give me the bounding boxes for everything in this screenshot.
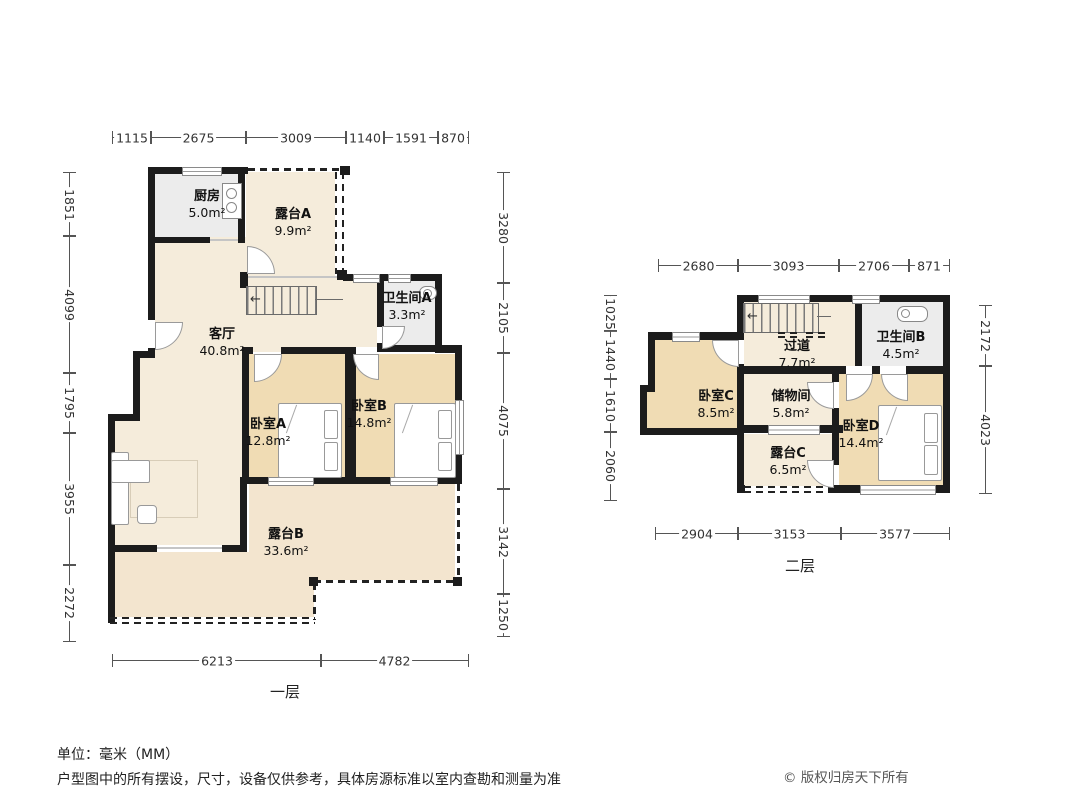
dim-right: 2105 [497, 282, 510, 354]
dim-bottom: 3577 [840, 527, 950, 540]
stairs-direction-arrow-icon: ← [250, 293, 261, 306]
dim-top: 2675 [150, 131, 247, 144]
dim-right: 3142 [497, 488, 510, 595]
room-bath-b-label: 卫生间B 4.5m² [866, 330, 936, 361]
room-terrace-a-label: 露台A 9.9m² [258, 207, 328, 238]
window [768, 425, 820, 435]
room-storage-label: 储物间 5.8m² [756, 389, 826, 420]
window [455, 400, 464, 455]
unit-note: 单位：毫米（MM） [57, 744, 179, 764]
room-hallway-label: 过道 7.7m² [762, 339, 832, 370]
room-terrace-c-label: 露台C 6.5m² [753, 446, 823, 477]
opening-line [246, 276, 343, 278]
wall [148, 237, 210, 243]
terrace-dashed-edge [314, 580, 458, 583]
corner-post [340, 166, 350, 175]
terrace-dashed-edge [313, 583, 316, 620]
corner-post [453, 577, 462, 586]
dim-bottom: 3153 [737, 527, 842, 540]
window [353, 274, 380, 283]
wall [108, 545, 157, 552]
wall [737, 425, 768, 433]
window [390, 477, 438, 486]
terrace-dashed-edge [744, 486, 832, 493]
pillow [924, 445, 938, 475]
stairs-rail [315, 299, 343, 300]
window [852, 295, 880, 304]
terrace-dashed-edge [335, 172, 344, 274]
terrace-dashed-edge [110, 617, 315, 624]
terrace-dashed-edge [248, 168, 343, 171]
stairs-direction-arrow-icon: ← [747, 310, 758, 323]
dim-top: 1591 [383, 131, 439, 144]
dim-top: 3009 [245, 131, 347, 144]
dim-left: 2272 [63, 564, 76, 642]
dim-top: 2706 [838, 259, 910, 272]
wall [872, 366, 880, 374]
corner-post [337, 270, 347, 280]
stairs-rail [817, 316, 831, 317]
wall [148, 167, 155, 320]
copyright-text: © 版权归房天下所有 [783, 766, 909, 786]
corner-post [309, 577, 318, 586]
dim-left: 1440 [604, 330, 617, 380]
wall [737, 332, 744, 340]
stairs-break-line [778, 332, 800, 338]
window [672, 332, 700, 342]
wall [242, 347, 249, 483]
toilet-icon [897, 306, 928, 322]
dim-right: 4075 [497, 352, 510, 490]
dim-left: 3955 [63, 432, 76, 566]
dim-left: 2060 [604, 431, 617, 501]
dim-top: 2680 [658, 259, 739, 272]
wall [832, 485, 860, 493]
dim-left: 1851 [63, 172, 76, 237]
window [182, 167, 222, 176]
stool-icon [137, 505, 157, 524]
stairs-break-line [806, 332, 828, 338]
room-bed-b-label: 卧室B 14.8m² [334, 399, 404, 430]
wall [934, 485, 950, 493]
wall [436, 477, 462, 484]
opening-line [157, 547, 222, 549]
dim-top: 3093 [737, 259, 840, 272]
window [388, 274, 411, 283]
opening-line [210, 239, 238, 241]
dim-right: 4023 [979, 365, 992, 494]
floorplan-canvas: ← 厨房 5.0m² 露台A 9.9m² [0, 0, 1066, 800]
dim-right: 1250 [497, 593, 510, 637]
dim-left: 1795 [63, 372, 76, 434]
wall [943, 295, 950, 493]
dim-left: 4099 [63, 235, 76, 374]
dim-top: 1115 [112, 131, 152, 144]
wall [222, 545, 247, 552]
dim-right: 3280 [497, 172, 510, 284]
room-living-label: 客厅 40.8m² [187, 327, 257, 358]
window [860, 485, 936, 495]
dim-right: 2172 [979, 305, 992, 367]
dim-bottom: 2904 [655, 527, 739, 540]
room-terrace-b-label: 露台B 33.6m² [251, 527, 321, 558]
wall [133, 351, 140, 421]
wall [640, 428, 744, 435]
pillow [438, 442, 452, 471]
dim-left: 1610 [604, 378, 617, 433]
room-kitchen-label: 厨房 5.0m² [172, 189, 242, 220]
window [268, 477, 314, 486]
wall [240, 477, 247, 552]
dim-top: 871 [908, 259, 950, 272]
wall [855, 302, 862, 366]
dim-left: 1025 [604, 295, 617, 332]
wall [832, 366, 839, 382]
wall [648, 332, 655, 388]
terrace-dashed-edge [457, 484, 460, 581]
dim-bottom: 6213 [112, 654, 322, 667]
wall [906, 366, 943, 374]
floor1-label: 一层 [240, 681, 330, 702]
wall [878, 295, 943, 302]
dim-top: 1140 [345, 131, 385, 144]
dim-top: 870 [437, 131, 469, 144]
dim-bottom: 4782 [320, 654, 469, 667]
wall [737, 433, 744, 493]
room-bath-a-label: 卫生间A 3.3m² [372, 291, 442, 322]
room-bed-d-label: 卧室D 14.4m² [826, 419, 896, 450]
corner-post [737, 485, 745, 493]
wall [312, 477, 390, 484]
pillow [438, 410, 452, 439]
room-bed-c-label: 卧室C 8.5m² [681, 389, 751, 420]
wall [455, 347, 462, 400]
pillow [924, 413, 938, 443]
floor2-label: 二层 [760, 555, 840, 576]
room-bed-c [647, 392, 655, 430]
wall [808, 295, 852, 302]
pillow [324, 442, 338, 471]
disclaimer-text: 户型图中的所有摆设，尺寸，设备仅供参考，具体房源标准以室内查勘和测量为准 [57, 769, 561, 789]
sofa-icon [111, 460, 150, 483]
room-bed-a-label: 卧室A 12.8m² [233, 417, 303, 448]
